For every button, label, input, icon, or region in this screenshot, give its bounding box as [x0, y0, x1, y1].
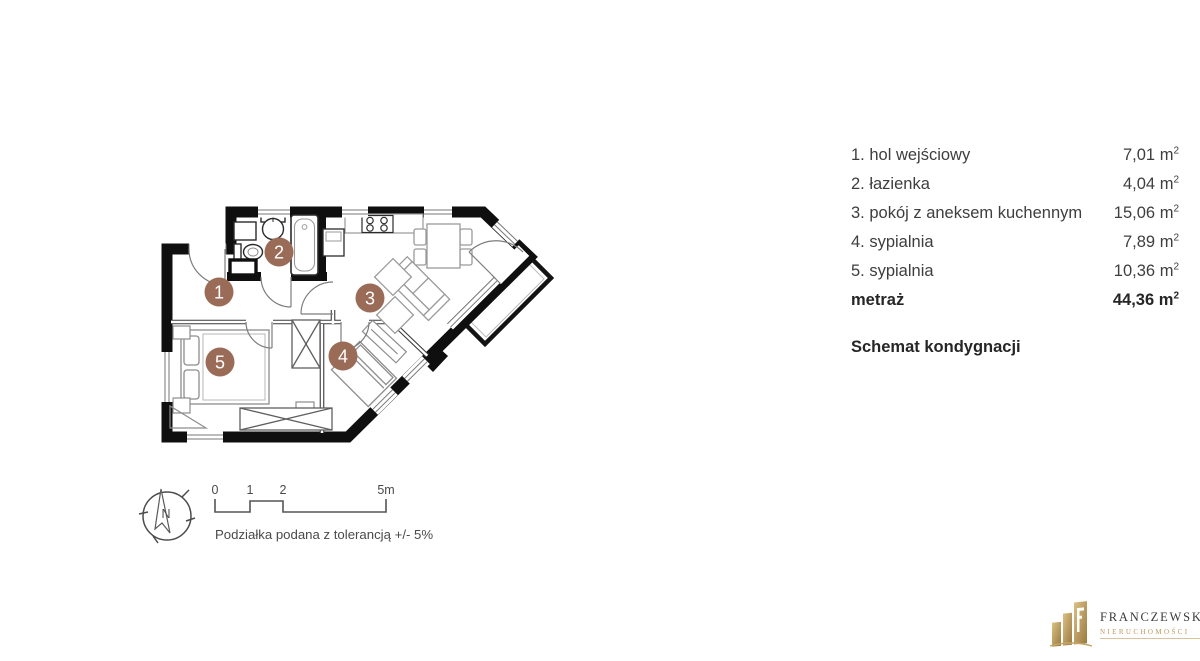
room-area: 10,36 m2 [1114, 257, 1179, 286]
sink-icon [261, 214, 285, 240]
room-area: 4,04 m2 [1123, 170, 1179, 199]
room-area: 7,89 m2 [1123, 228, 1179, 257]
room-marker-3: 3 [356, 284, 385, 313]
legend-row: 3. pokój z aneksem kuchennym 15,06 m2 [851, 199, 1179, 228]
room-label: 5. sypialnia [851, 257, 934, 286]
floor-plan-area: 1 2 3 4 5 N 0 1 2 5m Podziałka podana z … [130, 185, 600, 560]
logo-subtitle: NIERUCHOMOŚCI [1100, 628, 1200, 639]
compass: N [139, 489, 195, 543]
room-marker-4: 4 [329, 342, 358, 371]
chest-icon [240, 408, 332, 430]
svg-text:1: 1 [247, 483, 254, 497]
room-marker-1: 1 [205, 278, 234, 307]
fridge-icon [323, 229, 344, 256]
legend-row: 5. sypialnia 10,36 m2 [851, 257, 1179, 286]
room-area: 15,06 m2 [1114, 199, 1179, 228]
room-label: 2. łazienka [851, 170, 930, 199]
svg-text:2: 2 [280, 483, 287, 497]
room-label: 3. pokój z aneksem kuchennym [851, 199, 1082, 228]
legend-row: 4. sypialnia 7,89 m2 [851, 228, 1179, 257]
total-label: metraż [851, 286, 904, 315]
shaft-box [230, 260, 256, 275]
legend-row: 2. łazienka 4,04 m2 [851, 170, 1179, 199]
room-area: 7,01 m2 [1123, 141, 1179, 170]
wardrobe-icon [292, 320, 320, 368]
total-area: 44,36 m2 [1113, 286, 1179, 315]
stove-icon [362, 216, 393, 233]
logo-buildings-icon [1050, 599, 1092, 649]
washer-icon [234, 222, 256, 240]
schema-heading: Schemat kondygnacji [851, 338, 1179, 357]
floorplan-page: { "legend": { "rows": [ {"label": "1. ho… [0, 0, 1200, 661]
logo-text: FRANCZEWSKA NIERUCHOMOŚCI [1100, 610, 1200, 639]
toilet-icon [234, 244, 263, 260]
svg-text:3: 3 [365, 289, 375, 309]
svg-text:0: 0 [212, 483, 219, 497]
floor-plan: 1 2 3 4 5 N 0 1 2 5m Podziałka podana z … [130, 185, 600, 560]
scale-bar: 0 1 2 5m Podziałka podana z tolerancją +… [212, 483, 434, 542]
room-label: 4. sypialnia [851, 228, 934, 257]
logo-name: FRANCZEWSKA [1100, 610, 1200, 625]
svg-text:1: 1 [214, 283, 224, 303]
svg-text:2: 2 [274, 243, 284, 263]
svg-text:4: 4 [338, 347, 348, 367]
bathtub-icon [291, 215, 318, 275]
room-marker-2: 2 [265, 238, 294, 267]
agency-logo: FRANCZEWSKA NIERUCHOMOŚCI [1050, 599, 1200, 649]
scale-note: Podziałka podana z tolerancją +/- 5% [215, 527, 433, 542]
legend-row: 1. hol wejściowy 7,01 m2 [851, 141, 1179, 170]
north-label: N [161, 507, 170, 521]
room-label: 1. hol wejściowy [851, 141, 970, 170]
svg-text:5: 5 [215, 353, 225, 373]
legend-total-row: metraż 44,36 m2 [851, 286, 1179, 315]
room-legend: 1. hol wejściowy 7,01 m2 2. łazienka 4,0… [851, 141, 1179, 357]
svg-text:5m: 5m [377, 483, 394, 497]
room-marker-5: 5 [206, 348, 235, 377]
